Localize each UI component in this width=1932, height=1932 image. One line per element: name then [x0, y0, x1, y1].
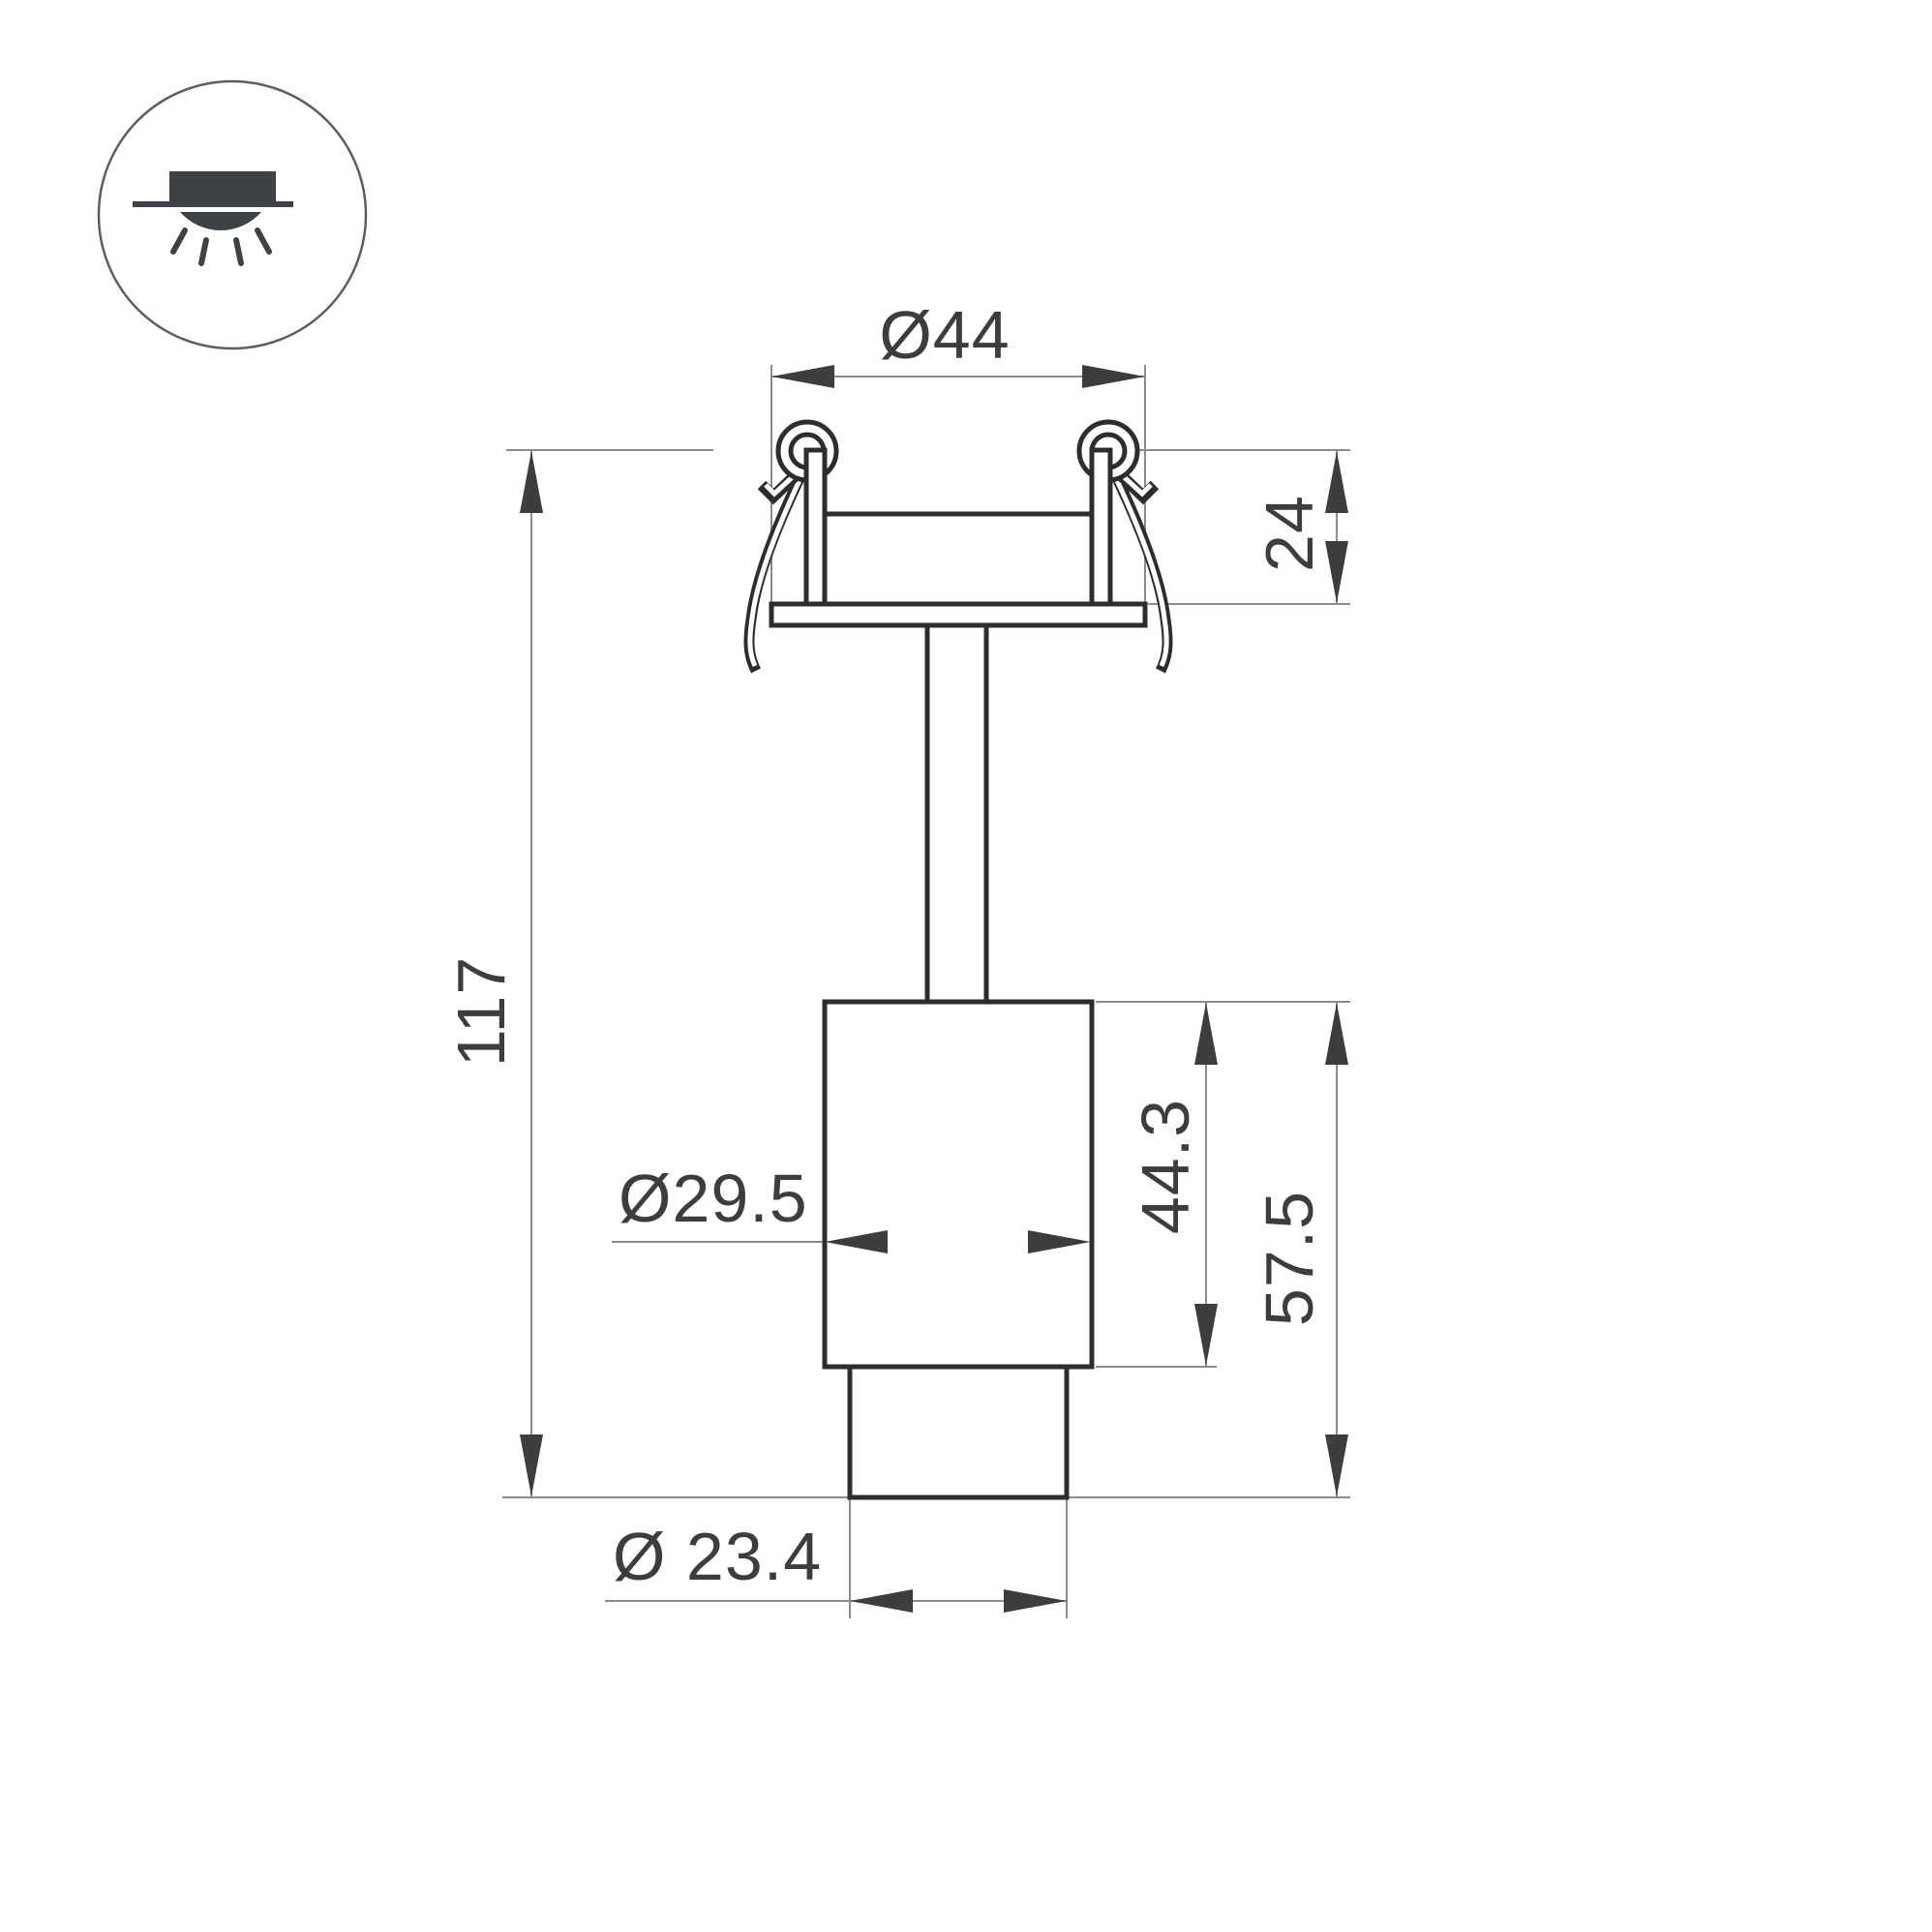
fixture-outline: [749, 422, 1167, 1497]
label-body-height: 44.3: [1128, 1099, 1203, 1234]
flange-plate: [771, 604, 1145, 625]
arrow-up: [1194, 1003, 1218, 1065]
arrow-left: [850, 1589, 913, 1613]
arrow-up: [1325, 451, 1348, 513]
arrow-right: [1004, 1589, 1067, 1613]
body-cylinder: [825, 1002, 1092, 1367]
trim-post-left: [806, 450, 825, 604]
tip-cylinder: [850, 1367, 1067, 1497]
arrow-down: [1325, 541, 1348, 603]
trim-post-right: [1092, 450, 1110, 604]
arrow-up: [520, 451, 543, 513]
arrow-up: [1325, 1003, 1348, 1065]
arrow-down: [1325, 1434, 1348, 1496]
label-top-diameter: Ø44: [879, 297, 1010, 373]
label-total-height: 117: [443, 956, 519, 1068]
label-recess-depth: 24: [1252, 495, 1327, 572]
arrow-down: [520, 1434, 543, 1496]
stem: [927, 625, 986, 1002]
arrow-down: [1194, 1304, 1218, 1366]
arrow-right: [1082, 365, 1145, 388]
technical-drawing-page: Ø44 24 117 Ø29.5 44.3 57.5 Ø 23.4: [0, 0, 1932, 1932]
icon-fixture-box: [169, 171, 276, 201]
spring-wire-left: [749, 474, 801, 671]
recessed-downlight-icon: [99, 81, 366, 348]
arrow-left: [771, 365, 834, 388]
label-body-diameter: Ø29.5: [619, 1161, 808, 1236]
drawing-canvas: Ø44 24 117 Ø29.5 44.3 57.5 Ø 23.4: [0, 0, 1932, 1932]
label-lower-height: 57.5: [1252, 1191, 1327, 1326]
spring-wire-right: [1115, 474, 1167, 671]
label-tip-diameter: Ø 23.4: [613, 1519, 822, 1594]
